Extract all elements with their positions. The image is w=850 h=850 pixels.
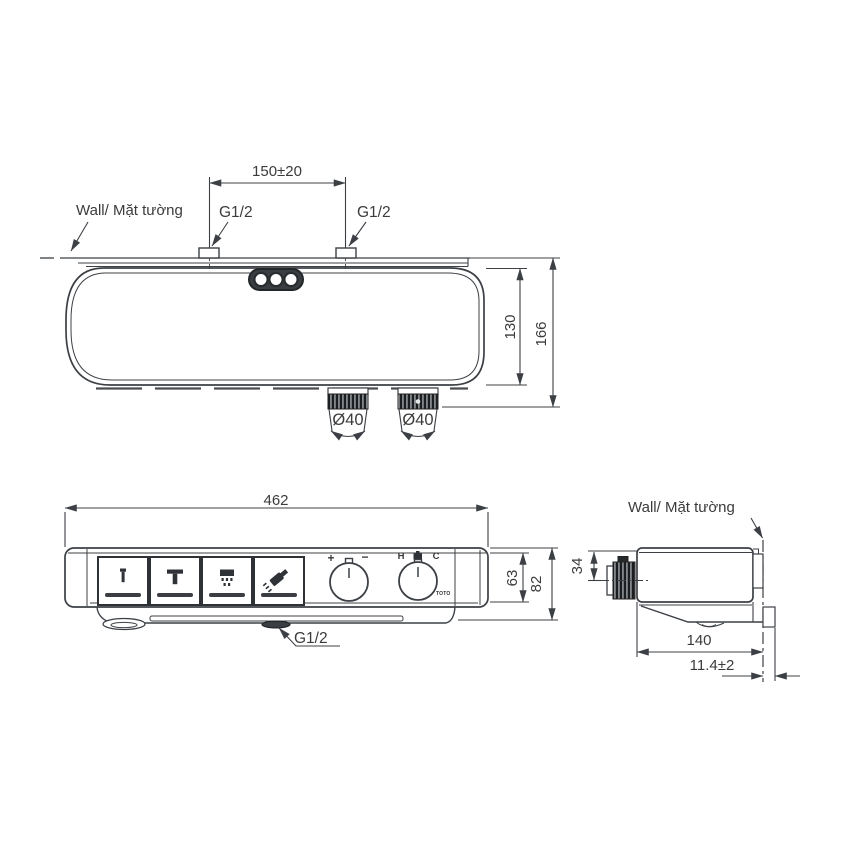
dim-knob-depth: 34	[569, 546, 587, 586]
outlet-thread-boss	[262, 621, 290, 628]
dim-body-depth: 130	[502, 307, 520, 347]
dim-overall-height: 82	[528, 564, 546, 604]
dim-overall-depth: 166	[533, 314, 551, 354]
wall-outlet-block	[763, 607, 775, 627]
thread-label-outlet: G1/2	[294, 630, 340, 648]
wall-label-side: Wall/ Mặt tường	[628, 499, 760, 516]
brand-logo: TOTO	[436, 592, 454, 598]
inlet-leader-left	[212, 222, 228, 246]
flow-increase-label: +	[325, 552, 337, 566]
inlet-connector-right	[336, 248, 356, 258]
technical-drawing-canvas: 150±20 Wall/ Mặt tường G1/2 G1/2 Ø40 Ø40…	[0, 0, 850, 850]
knob-side	[607, 557, 635, 600]
wall-leader-top	[71, 222, 88, 251]
dim-knob-diameter-right: Ø40	[398, 411, 438, 430]
thread-label-inlet-left: G1/2	[219, 204, 263, 222]
dim-panel-height: 63	[504, 558, 522, 598]
tray-slot	[150, 616, 403, 621]
wall-leader-side	[751, 518, 763, 538]
flow-decrease-label: −	[359, 551, 371, 565]
dim-inlet-spacing: 150±20	[230, 163, 324, 180]
dim-width: 462	[244, 492, 308, 509]
dim-knob-diameter-left: Ø40	[328, 411, 368, 430]
body-side	[637, 548, 753, 602]
back-plate-side	[753, 554, 763, 588]
mounting-plate-edge	[78, 258, 468, 267]
triple-outlet-icon	[249, 269, 303, 290]
bottom-tray-side	[639, 602, 763, 627]
inlet-connector-left	[199, 248, 219, 258]
dim-wall-clearance: 11.4±2	[674, 657, 750, 674]
inlet-leader-right	[349, 222, 366, 246]
wall-label-top: Wall/ Mặt tường	[76, 202, 208, 219]
temp-hot-label: H	[396, 552, 406, 563]
dim-inlet-spacing-lines	[210, 177, 346, 270]
bottom-tray-front	[97, 607, 455, 630]
temp-cold-label: C	[431, 552, 441, 563]
dim-body-length: 140	[669, 632, 729, 649]
thread-label-inlet-right: G1/2	[357, 204, 401, 222]
dim-width-lines	[65, 508, 488, 547]
front-view	[65, 508, 558, 646]
